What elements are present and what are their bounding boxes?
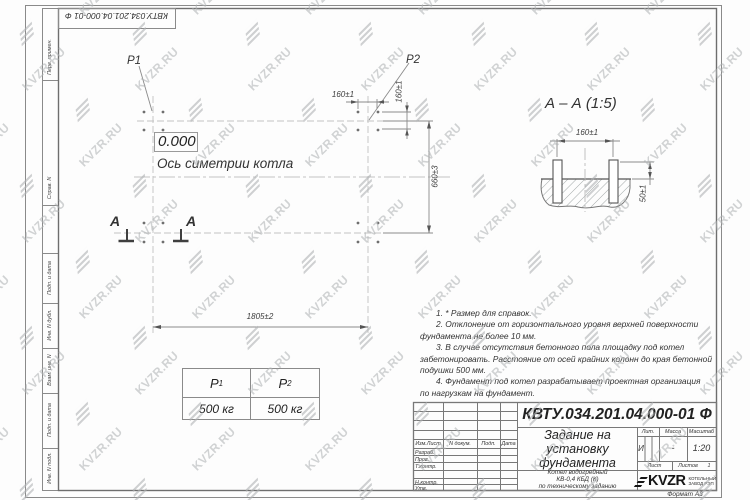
load-table-header-p1: P1: [183, 369, 251, 398]
title-line-1: Задание на: [544, 428, 611, 442]
note-line: забетонировать. Расстояние от осей крайн…: [420, 354, 722, 365]
section-dim-width: 160±1: [567, 128, 607, 137]
section-cut-marks: [119, 229, 189, 241]
margin-label-sprav-n: Справ. N: [44, 174, 56, 202]
load-point-p2-label: P2: [406, 54, 420, 66]
format-label: Формат А3: [650, 491, 720, 498]
tb-masshtab-value: 1:20: [687, 443, 716, 453]
tb-massa-value: -: [659, 443, 687, 453]
technical-notes: 1. * Размер для справок. 2. Отклонение о…: [420, 308, 722, 399]
level-mark: 0.000: [154, 132, 198, 152]
note-line: 4. Фундамент под котел разрабатывает про…: [420, 376, 722, 387]
title-block-doc-number: КВТУ.034.201.04.000-01 Ф: [518, 402, 716, 427]
load-table-value-p2: 500 кг: [251, 398, 319, 419]
note-line: фундамента не более 10 мм.: [420, 331, 722, 342]
dim-foundation-width: 1805±2: [235, 312, 285, 321]
tb-row-razrab: Разраб.: [415, 450, 435, 456]
title-block-title: Задание на установку фундамента: [518, 428, 637, 470]
tb-row-tkontr: Т.контр.: [415, 464, 437, 470]
tb-col-podp: Подп.: [477, 441, 500, 447]
margin-label-inv-podl: Инв. N подл.: [44, 449, 56, 487]
product-line-3: по техническому заданию: [539, 484, 617, 491]
tb-listov-header: Листов: [673, 463, 703, 469]
tb-col-data: Дата: [500, 441, 517, 447]
title-block-product: Котел водогрейный КВ-0,4 КБД (К) по техн…: [518, 471, 637, 490]
tb-col-izm-list: Изм.Лист: [413, 441, 443, 447]
company-name-line2: ЗАВОД РЭП: [688, 481, 716, 486]
kvzr-logo-text: KVZR: [648, 473, 685, 489]
company-logo-cell: KVZR КОТЕЛЬНЫЙ ЗАВОД РЭП: [638, 471, 716, 490]
load-table-value-p1: 500 кг: [183, 398, 251, 419]
load-table-header-p2: P2: [251, 369, 319, 398]
tb-list-header: Лист: [637, 463, 672, 469]
load-point-p1-label: P1: [127, 55, 141, 67]
note-line: по нагрузкам на фундамент.: [420, 388, 722, 399]
margin-label-vzam-inv: Взам. инв. N: [44, 351, 56, 389]
note-line: 3. В случае отсутствия бетонного пола пл…: [420, 342, 722, 353]
company-name-line1: КОТЕЛЬНЫЙ: [688, 476, 716, 481]
drawing-sheet: КВТУ.034.201.04.000-01 Ф Перв. примен. С…: [0, 0, 750, 500]
title-line-3: фундамента: [539, 456, 616, 470]
note-line: подушки 500 мм.: [420, 365, 722, 376]
company-name: КОТЕЛЬНЫЙ ЗАВОД РЭП: [688, 476, 716, 486]
section-letter-left: A: [110, 213, 120, 229]
tb-listov-value: 1: [703, 463, 715, 469]
section-view-title: А – А (1:5): [545, 95, 617, 112]
margin-label-podp-data-1: Подп. и дата: [44, 258, 56, 298]
tb-lit-header: Лит.: [637, 429, 659, 435]
tb-col-n-dokum: N докум.: [443, 441, 477, 447]
doc-number-rotated: КВТУ.034.201.04.000-01 Ф: [58, 11, 175, 21]
tb-masshtab-header: Масштаб: [687, 429, 716, 435]
dim-pitch-horizontal: 160±1: [323, 90, 363, 99]
note-line: 1. * Размер для справок.: [420, 308, 722, 319]
note-line: 2. Отклонение от горизонтального уровня …: [420, 319, 722, 330]
tb-massa-header: Масса: [659, 429, 687, 435]
margin-label-podp-data-2: Подп. и дата: [44, 400, 56, 440]
section-letter-right: A: [186, 213, 196, 229]
margin-label-inv-dubl: Инв. N дубл.: [44, 306, 56, 344]
load-table: P1 P2 500 кг 500 кг: [182, 368, 320, 420]
tb-row-prov: Пров.: [415, 457, 429, 463]
section-view-geometry: [541, 148, 631, 212]
title-line-2: установку: [546, 442, 608, 456]
tb-row-utv: Утв.: [415, 486, 427, 492]
boiler-symmetry-axis-label: Ось симетрии котла: [157, 156, 293, 171]
dim-foundation-height: 660±3: [431, 157, 440, 197]
margin-label-perv-primen: Перв. примен.: [44, 37, 56, 77]
tb-lit-value: И: [637, 444, 645, 453]
dim-pitch-vertical: 160±1: [395, 72, 404, 112]
section-dim-height: 50±1: [639, 174, 648, 214]
